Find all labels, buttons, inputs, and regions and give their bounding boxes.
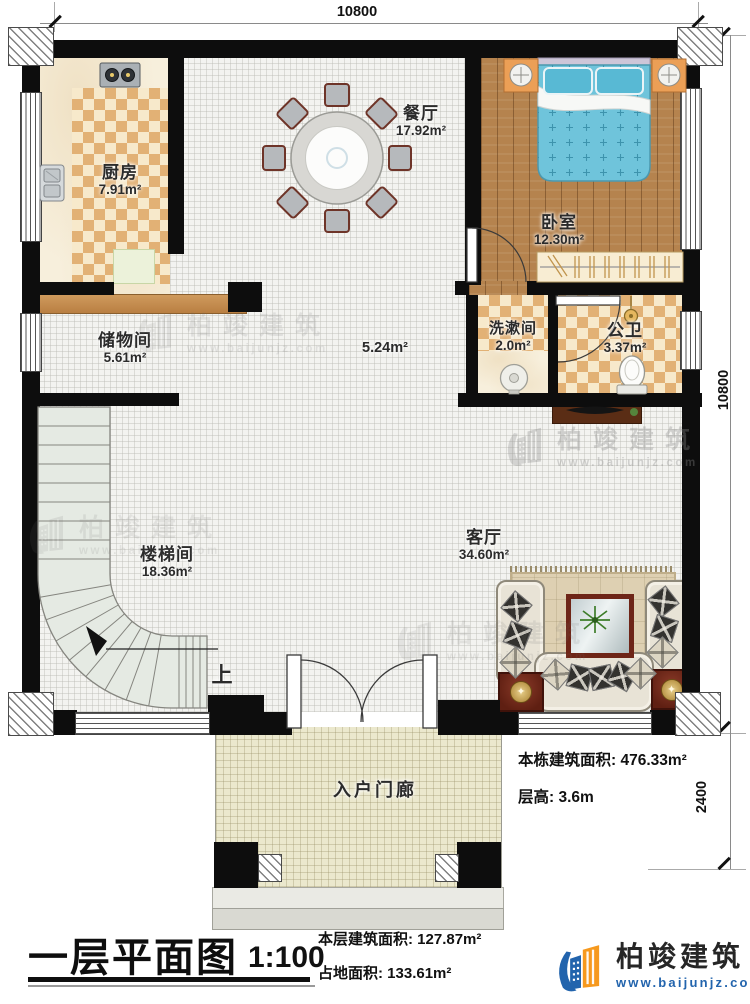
room-label-washroom: 洗漱间 2.0m² (489, 321, 537, 353)
wall (438, 700, 500, 735)
wall (35, 40, 700, 58)
dim-line-top (40, 23, 708, 24)
title-underline-thin (28, 985, 315, 987)
dim-top-label: 10800 (337, 4, 377, 20)
wall (548, 295, 558, 393)
wall (465, 40, 481, 285)
dim-tick (48, 15, 61, 28)
drawing-scale: 1:100 (248, 941, 325, 975)
page-title: 一层平面图 (28, 925, 238, 983)
wall (22, 282, 114, 295)
porch-column-marker (258, 854, 282, 882)
dim-extension-line (648, 869, 746, 870)
porch-column (457, 842, 501, 888)
wall (228, 282, 262, 312)
wall (527, 281, 700, 295)
room-label-kitchen: 厨房 7.91m² (99, 163, 142, 197)
room-label-living: 客厅 34.60m² (459, 528, 509, 562)
wall (466, 295, 478, 407)
porch-column-marker (435, 854, 459, 882)
window (20, 92, 42, 242)
title-underline (28, 977, 310, 982)
window (75, 712, 210, 735)
floor-height-note: 层高: 3.6m (518, 785, 594, 807)
window (20, 313, 42, 372)
porch-step (212, 908, 504, 930)
porch-step (212, 887, 504, 910)
kitchen-mat (113, 249, 155, 284)
dim-right-label: 10800 (716, 370, 732, 410)
porch-column (214, 842, 258, 888)
corner-column-marker (675, 692, 721, 736)
bedroom-floor (481, 56, 682, 281)
floor-area-note: 本层建筑面积: 127.87m² (318, 928, 481, 949)
brand-logo-icon (552, 938, 610, 994)
rug-fringe (510, 566, 672, 572)
wall (262, 712, 292, 735)
tv-cabinet (552, 406, 642, 424)
room-label-stairwell: 楼梯间 18.36m² (140, 545, 194, 579)
building-area-note: 本栋建筑面积: 476.33m² (518, 748, 687, 770)
room-label-bathroom: 公卫 3.37m² (604, 321, 647, 355)
corner-column-marker (8, 692, 54, 736)
dim-extension-line (54, 2, 55, 32)
window (680, 311, 702, 370)
wall (458, 393, 702, 407)
area-label-hallway: 5.24m² (362, 340, 408, 356)
end-table: ✦ (498, 672, 544, 712)
corner-column-marker (8, 27, 54, 66)
room-label-storage: 储物间 5.61m² (98, 331, 152, 365)
window (518, 712, 652, 735)
floorplan-canvas: 10800 10800 2400 ✦ ✦ (0, 0, 750, 1004)
wall (455, 281, 469, 295)
wall (22, 393, 179, 406)
brand-logo: 柏竣建筑 www.baijunjz.com (552, 938, 750, 994)
wall (498, 712, 520, 735)
dim-tick (717, 857, 730, 870)
dim-line-porch (730, 733, 731, 869)
brass-medallion: ✦ (510, 681, 532, 703)
corner-column-marker (677, 27, 723, 66)
room-label-dining: 餐厅 17.92m² (396, 104, 446, 138)
dim-porch-label: 2400 (694, 781, 710, 813)
land-area-note: 占地面积: 133.61m² (318, 962, 451, 983)
window (680, 88, 702, 250)
coffee-table (566, 594, 634, 658)
room-label-bedroom: 卧室 12.30m² (534, 213, 584, 247)
counter (38, 294, 247, 314)
stairs-up-label: 上 (212, 664, 233, 688)
wall (208, 695, 264, 735)
room-label-porch: 入户门廊 (333, 780, 417, 800)
washroom-alcove-floor (478, 351, 548, 393)
wall (168, 58, 184, 254)
